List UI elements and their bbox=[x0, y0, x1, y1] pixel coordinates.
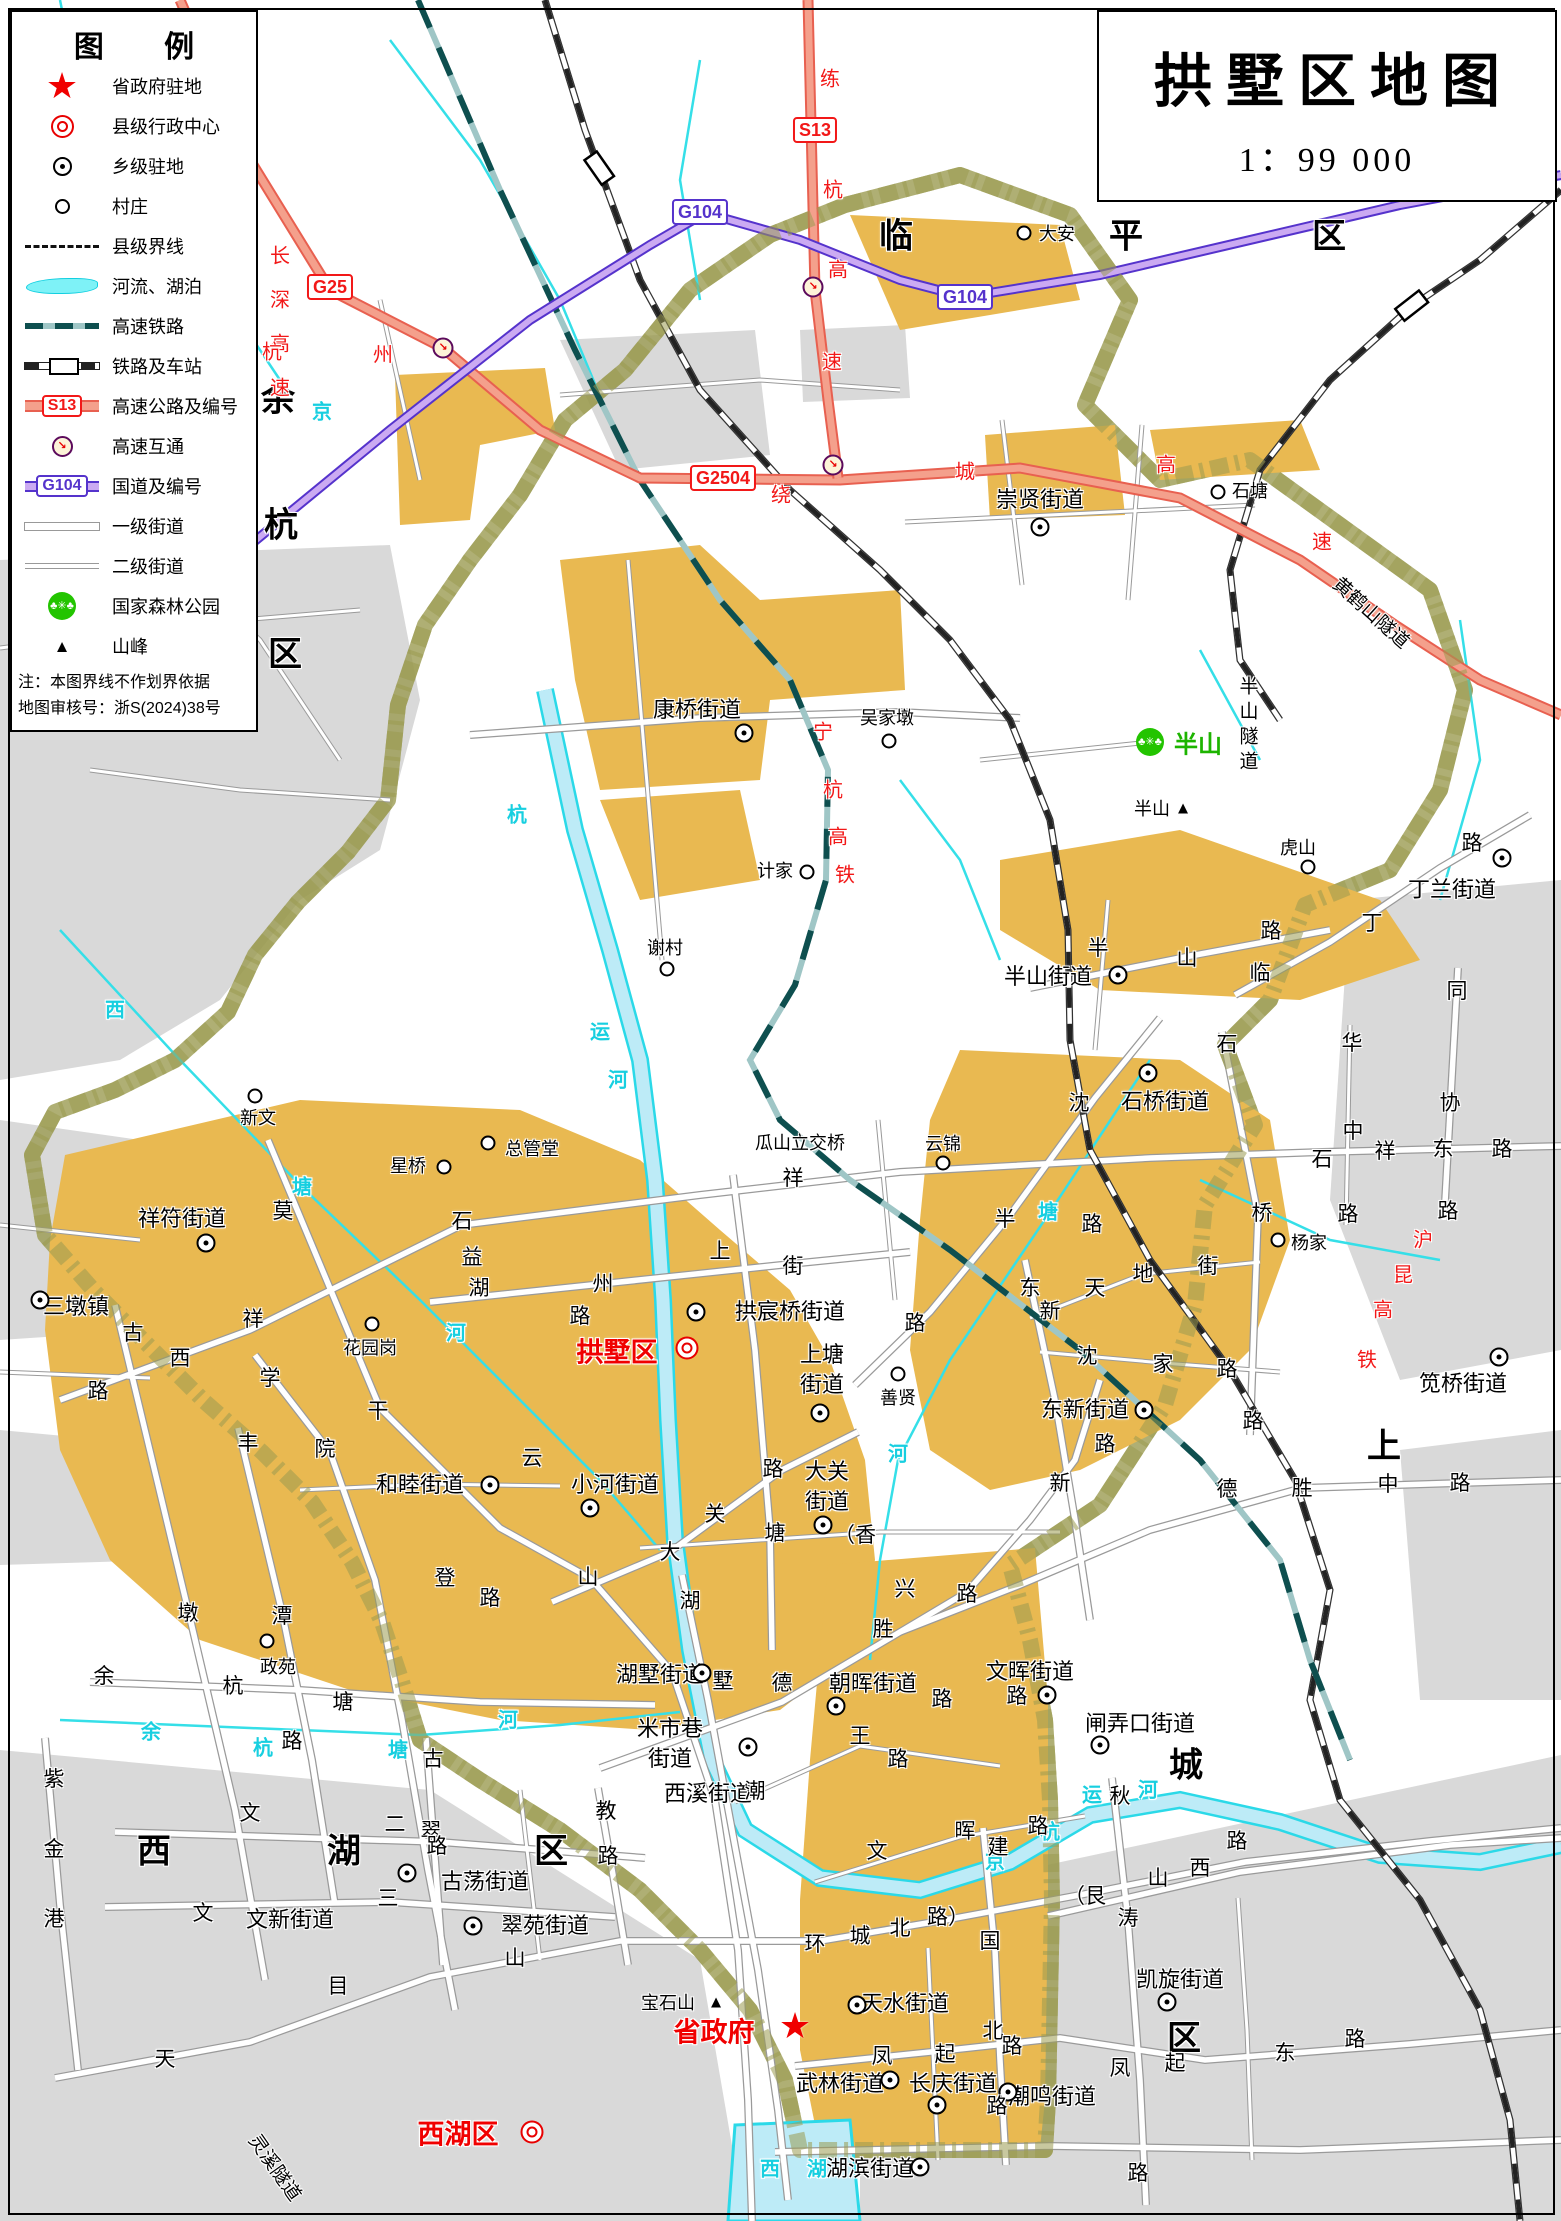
road-name-char: 同 bbox=[1447, 975, 1468, 1005]
village-marker bbox=[1271, 1233, 1286, 1248]
road-name-char: 路） bbox=[927, 1901, 969, 1931]
map-scale: 1：99 000 bbox=[1099, 132, 1555, 181]
road-name-char: 兴 bbox=[895, 1573, 916, 1603]
expressway-name-char: 深 bbox=[270, 284, 290, 313]
forest-park-label: 半山 bbox=[1174, 725, 1222, 760]
road-name-char: 新 bbox=[1050, 1467, 1071, 1497]
rail-icon bbox=[12, 362, 112, 370]
town-marker bbox=[1158, 1993, 1177, 2012]
legend-label: 国家森林公园 bbox=[112, 593, 220, 619]
road-name-char: 城 bbox=[850, 1920, 871, 1950]
road-name-char: 丁 bbox=[1362, 907, 1383, 937]
nat-icon: G104 bbox=[12, 481, 112, 492]
road-name-char: （香 bbox=[834, 1519, 876, 1549]
town-marker bbox=[928, 2096, 947, 2115]
town-marker bbox=[911, 2158, 930, 2177]
expressway-name-char: 昆 bbox=[1393, 1259, 1413, 1288]
forest-icon: ♣✳♣ bbox=[12, 592, 112, 620]
road-name-char: 路 bbox=[905, 1307, 926, 1337]
village-label: 杨家 bbox=[1291, 1229, 1327, 1255]
road-name-char: 山 bbox=[505, 1942, 526, 1972]
district-name-char: 杭 bbox=[264, 498, 300, 547]
road-name-char: 路 bbox=[1227, 1825, 1248, 1855]
village-marker bbox=[260, 1634, 275, 1649]
expressway-name-char: 速 bbox=[270, 372, 290, 401]
subdistrict-label: 米市巷 bbox=[637, 1711, 703, 1743]
river-name-char: 塘 bbox=[388, 1734, 408, 1763]
road-name-char: 路 bbox=[570, 1300, 591, 1330]
village-label: 政苑 bbox=[260, 1653, 296, 1679]
road-name-char: 北 bbox=[890, 1912, 911, 1942]
road1-icon bbox=[12, 522, 112, 531]
road-name-char: 王 bbox=[850, 1720, 871, 1750]
town-marker bbox=[464, 1917, 483, 1936]
road-name-char: 半 bbox=[995, 1203, 1016, 1233]
road-name-char: 街 bbox=[1198, 1250, 1219, 1280]
subdistrict-label: 石桥街道 bbox=[1121, 1084, 1209, 1116]
tunnel-label: 半山隧道 bbox=[1234, 676, 1261, 776]
road-name-char: 潮 bbox=[745, 1775, 766, 1805]
expressway-name-char: 速 bbox=[822, 346, 842, 375]
interchange-icon: ↘ bbox=[12, 436, 112, 457]
village-label: 石塘 bbox=[1232, 477, 1268, 503]
legend-label: 二级街道 bbox=[112, 553, 184, 579]
road-name-char: 益 bbox=[462, 1241, 483, 1271]
road-name-char: 杭 bbox=[223, 1670, 244, 1700]
road-name-char: 云 bbox=[522, 1442, 543, 1472]
expressway-name-char: 铁 bbox=[835, 859, 855, 888]
legend-item-road2: 二级街道 bbox=[12, 546, 256, 586]
road-name-char: 协 bbox=[1440, 1087, 1461, 1117]
legend-label: 山峰 bbox=[112, 633, 148, 659]
road-name-char: 路 bbox=[88, 1375, 109, 1405]
village-marker bbox=[800, 865, 815, 880]
road-name-char: 石 bbox=[452, 1205, 473, 1235]
town-icon bbox=[12, 157, 112, 176]
interchange-marker: ↘ bbox=[803, 277, 824, 298]
road-name-char: 家 bbox=[1153, 1348, 1174, 1378]
town-marker bbox=[481, 1476, 500, 1495]
village-marker bbox=[1017, 226, 1032, 241]
village-marker bbox=[891, 1367, 906, 1382]
town-marker bbox=[581, 1499, 600, 1518]
county-center-marker bbox=[676, 1337, 699, 1360]
village-label: 吴家墩 bbox=[860, 704, 914, 730]
town-marker bbox=[1031, 518, 1050, 537]
subdistrict-label: 古荡街道 bbox=[441, 1864, 529, 1896]
town-marker bbox=[197, 1234, 216, 1253]
river-name-char: 西 bbox=[105, 994, 125, 1023]
road-name-char: 沈 bbox=[1069, 1087, 1090, 1117]
road-name-char: 天 bbox=[155, 2043, 176, 2073]
expressway-name-char: 杭 bbox=[262, 336, 282, 365]
subdistrict-label: 翠苑街道 bbox=[501, 1908, 589, 1940]
road-name-char: 东 bbox=[1433, 1133, 1454, 1163]
legend-box: 图 例 ★省政府驻地县级行政中心乡级驻地村庄县级界线河流、湖泊高速铁路铁路及车站… bbox=[10, 10, 258, 732]
road-name-char: 半 bbox=[1088, 932, 1109, 962]
road-name-char: 路 bbox=[480, 1582, 501, 1612]
road-name-char: 余 bbox=[94, 1660, 115, 1690]
subdistrict-label: 丁兰街道 bbox=[1408, 872, 1496, 904]
road-name-char: 路 bbox=[282, 1725, 303, 1755]
road-name-char: 西 bbox=[170, 1342, 191, 1372]
village-marker bbox=[437, 1160, 452, 1175]
road-name-char: 胜 bbox=[873, 1613, 894, 1643]
road-name-char: 关 bbox=[705, 1498, 726, 1528]
road-name-char: 祥 bbox=[243, 1303, 264, 1333]
legend-item-expwy: S13高速公路及编号 bbox=[12, 386, 256, 426]
legend-label: 高速公路及编号 bbox=[112, 393, 238, 419]
road2-icon bbox=[12, 563, 112, 569]
village-marker bbox=[882, 734, 897, 749]
subdistrict-label: 上塘 bbox=[800, 1337, 844, 1369]
river-name-char: 河 bbox=[446, 1317, 466, 1346]
town-marker bbox=[827, 1697, 846, 1716]
road-name-char: 路 bbox=[1002, 2030, 1023, 2060]
subdistrict-label: 半山街道 bbox=[1004, 959, 1092, 991]
town-marker bbox=[1490, 1348, 1509, 1367]
route-badge-G104: G104 bbox=[937, 284, 993, 310]
road-name-char: 胜 bbox=[1292, 1472, 1313, 1502]
subdistrict-label: 湖墅街道 bbox=[616, 1657, 704, 1689]
road-name-char: 潭 bbox=[272, 1600, 293, 1630]
district-name-char: 临 bbox=[879, 209, 915, 258]
town-marker bbox=[814, 1516, 833, 1535]
road-name-char: 州 bbox=[593, 1268, 614, 1298]
district-name-char: 区 bbox=[268, 627, 304, 676]
road-name-char: 路 bbox=[1345, 2023, 1366, 2053]
red-place-label: 省政府 bbox=[674, 2011, 755, 2050]
subdistrict-label: 文新街道 bbox=[246, 1902, 334, 1934]
boundary-icon bbox=[12, 245, 112, 248]
legend-label: 一级街道 bbox=[112, 513, 184, 539]
legend-item-interchange: ↘高速互通 bbox=[12, 426, 256, 466]
legend-item-road1: 一级街道 bbox=[12, 506, 256, 546]
county-center-marker bbox=[521, 2121, 544, 2144]
town-marker bbox=[687, 1303, 706, 1322]
district-name-char: 湖 bbox=[327, 1824, 363, 1873]
road-name-char: 路 bbox=[1028, 1810, 1049, 1840]
village-label: 总管堂 bbox=[505, 1135, 559, 1161]
road-name-char: 祥 bbox=[783, 1162, 804, 1192]
road-name-char: 临 bbox=[1250, 957, 1271, 987]
subdistrict-label: 湖滨街道 bbox=[826, 2151, 914, 2183]
water-icon bbox=[12, 278, 112, 294]
road-name-char: 路 bbox=[1261, 915, 1282, 945]
peak-label: 半山 bbox=[1134, 795, 1170, 821]
road-name-char: 路 bbox=[1095, 1428, 1116, 1458]
map-page: 图 例 ★省政府驻地县级行政中心乡级驻地村庄县级界线河流、湖泊高速铁路铁路及车站… bbox=[0, 0, 1561, 2221]
map-title: 拱墅区地图 bbox=[1099, 34, 1555, 118]
road-name-char: 国 bbox=[980, 1925, 1001, 1955]
road-name-char: 路 bbox=[1438, 1195, 1459, 1225]
legend-items: ★省政府驻地县级行政中心乡级驻地村庄县级界线河流、湖泊高速铁路铁路及车站S13高… bbox=[12, 66, 256, 666]
legend-label: 村庄 bbox=[112, 193, 148, 219]
river-name-char: 河 bbox=[1138, 1774, 1158, 1803]
road-name-char: 路 bbox=[1243, 1405, 1264, 1435]
subdistrict-label: 拱宸桥街道 bbox=[735, 1294, 845, 1326]
legend-item-town: 乡级驻地 bbox=[12, 146, 256, 186]
road-name-char: 地 bbox=[1133, 1258, 1154, 1288]
road-name-char: 桥 bbox=[1252, 1197, 1273, 1227]
road-name-char: 路 bbox=[888, 1743, 909, 1773]
legend-item-forest: ♣✳♣国家森林公园 bbox=[12, 586, 256, 626]
road-name-char: 东 bbox=[1020, 1272, 1041, 1302]
town-marker bbox=[1139, 1064, 1158, 1083]
subdistrict-label: 小河街道 bbox=[571, 1467, 659, 1499]
hsr-icon bbox=[12, 323, 112, 329]
road-name-char: 湖 bbox=[469, 1272, 490, 1302]
village-label: 云锦 bbox=[925, 1130, 961, 1156]
legend-item-nat: G104国道及编号 bbox=[12, 466, 256, 506]
subdistrict-label: 武林街道 bbox=[796, 2066, 884, 2098]
road-name-char: 秋 bbox=[1110, 1780, 1131, 1810]
road-name-char: 中 bbox=[1378, 1468, 1399, 1498]
expressway-name-char: 绕 bbox=[771, 479, 791, 508]
road-name-char: 路 bbox=[763, 1453, 784, 1483]
village-label: 大安 bbox=[1039, 220, 1075, 246]
subdistrict-label: 朝晖街道 bbox=[829, 1666, 917, 1698]
subdistrict-label: 潮鸣街道 bbox=[1008, 2079, 1096, 2111]
road-name-char: 干 bbox=[368, 1395, 389, 1425]
red-place-label: 拱墅区 bbox=[577, 1331, 658, 1370]
legend-label: 乡级驻地 bbox=[112, 153, 184, 179]
road-name-char: 建 bbox=[988, 1831, 1009, 1861]
subdistrict-label: 三墩镇 bbox=[43, 1289, 109, 1321]
road-name-char: 古 bbox=[423, 1743, 444, 1773]
interchange-marker: ↘ bbox=[433, 338, 454, 359]
expressway-name-char: 速 bbox=[1312, 526, 1332, 555]
road-name-char: 登 bbox=[435, 1562, 456, 1592]
subdistrict-label: 康桥街道 bbox=[653, 692, 741, 724]
road-name-char: 港 bbox=[44, 1903, 65, 1933]
road-name-char: 目 bbox=[328, 1970, 349, 2000]
road-name-char: 墩 bbox=[178, 1597, 199, 1627]
village-marker bbox=[936, 1156, 951, 1171]
road-name-char: 东 bbox=[1275, 2037, 1296, 2067]
legend-label: 县级界线 bbox=[112, 233, 184, 259]
road-name-char: 墅 bbox=[713, 1665, 734, 1695]
district-name-char: 西 bbox=[137, 1824, 173, 1873]
legend-label: 国道及编号 bbox=[112, 473, 202, 499]
road-name-char: 石 bbox=[1217, 1028, 1238, 1058]
district-name-char: 区 bbox=[534, 1824, 570, 1873]
title-box: 拱墅区地图 1：99 000 bbox=[1097, 10, 1557, 202]
county-icon bbox=[12, 115, 112, 138]
village-label: 谢村 bbox=[647, 934, 683, 960]
road-name-char: 莫 bbox=[273, 1195, 294, 1225]
legend-item-star: ★省政府驻地 bbox=[12, 66, 256, 106]
road-name-char: 沈 bbox=[1077, 1340, 1098, 1370]
road-name-char: 西 bbox=[1190, 1852, 1211, 1882]
road-name-char: （艮 bbox=[1064, 1880, 1106, 1910]
road-name-char: 天 bbox=[1085, 1272, 1106, 1302]
road-name-char: 北 bbox=[983, 2015, 1004, 2045]
river-name-char: 西 bbox=[760, 2153, 780, 2182]
legend-note-2: 地图审核号：浙S(2024)38号 bbox=[18, 694, 250, 718]
forest-park-icon: ♣✳♣ bbox=[1136, 728, 1164, 756]
subdistrict-label: 笕桥街道 bbox=[1419, 1366, 1507, 1398]
town-marker bbox=[735, 724, 754, 743]
village-label: 花园岗 bbox=[343, 1334, 397, 1360]
expressway-name-char: 高 bbox=[1156, 449, 1176, 478]
road-name-char: 山 bbox=[1148, 1862, 1169, 1892]
town-marker bbox=[398, 1864, 417, 1883]
river-name-char: 塘 bbox=[1038, 1196, 1058, 1225]
peak-icon: ▲ bbox=[12, 638, 112, 655]
river-name-char: 京 bbox=[312, 396, 332, 425]
road-name-char: 紫 bbox=[44, 1763, 65, 1793]
road-name-char: 石 bbox=[1312, 1143, 1333, 1173]
village-marker bbox=[660, 962, 675, 977]
road-name-char: 山 bbox=[1177, 942, 1198, 972]
route-badge-S13: S13 bbox=[793, 117, 837, 143]
subdistrict-label: 文晖街道 bbox=[986, 1654, 1074, 1686]
legend-label: 铁路及车站 bbox=[112, 353, 202, 379]
subdistrict-label: 崇贤街道 bbox=[996, 482, 1084, 514]
village-marker bbox=[365, 1317, 380, 1332]
road-name-char: 文 bbox=[193, 1897, 214, 1927]
legend-item-peak: ▲山峰 bbox=[12, 626, 256, 666]
road-name-char: 塘 bbox=[765, 1517, 786, 1547]
subdistrict-label: 西溪街道 bbox=[664, 1776, 752, 1808]
road-name-char: 路 bbox=[987, 2090, 1008, 2120]
town-marker bbox=[848, 1996, 867, 2015]
provincial-gov-star: ★ bbox=[779, 2008, 811, 2044]
subdistrict-label: 和睦街道 bbox=[376, 1467, 464, 1499]
road-name-char: 塘 bbox=[333, 1686, 354, 1716]
river-name-char: 河 bbox=[608, 1064, 628, 1093]
road-name-char: 路 bbox=[1217, 1353, 1238, 1383]
road-name-char: 晖 bbox=[955, 1815, 976, 1845]
road-name-char: 中 bbox=[1343, 1115, 1364, 1145]
road-name-char: 上 bbox=[710, 1235, 731, 1265]
road-name-char: 德 bbox=[772, 1667, 793, 1697]
subdistrict-label: 闸弄口街道 bbox=[1085, 1706, 1195, 1738]
expwy-icon: S13 bbox=[12, 400, 112, 412]
route-badge-G2504: G2504 bbox=[690, 465, 756, 491]
legend-item-village: 村庄 bbox=[12, 186, 256, 226]
road-name-char: 院 bbox=[315, 1433, 336, 1463]
river-name-char: 运 bbox=[1082, 1779, 1102, 1808]
road-name-char: 新 bbox=[1040, 1295, 1061, 1325]
subdistrict-label: 大关 bbox=[805, 1454, 849, 1486]
road-name-char: 路 bbox=[957, 1578, 978, 1608]
legend-item-boundary: 县级界线 bbox=[12, 226, 256, 266]
village-icon bbox=[12, 199, 112, 214]
route-badge-G104: G104 bbox=[672, 199, 728, 225]
peak-label: 宝石山 bbox=[641, 1989, 695, 2015]
village-marker bbox=[1301, 860, 1316, 875]
district-name-char: 平 bbox=[1109, 209, 1145, 258]
town-marker bbox=[881, 2071, 900, 2090]
river-name-char: 湖 bbox=[807, 2153, 827, 2182]
road-name-char: 学 bbox=[260, 1362, 281, 1392]
town-marker bbox=[739, 1738, 758, 1757]
expressway-name-char: 铁 bbox=[1357, 1344, 1377, 1373]
road-name-char: 起 bbox=[1165, 2047, 1186, 2077]
legend-item-water: 河流、湖泊 bbox=[12, 266, 256, 306]
legend-note-1: 注：本图界线不作划界依据 bbox=[18, 668, 250, 692]
road-name-char: 路 bbox=[1450, 1467, 1471, 1497]
village-marker bbox=[248, 1089, 263, 1104]
road-name-char: 街 bbox=[783, 1250, 804, 1280]
subdistrict-label-line2: 街道 bbox=[648, 1741, 692, 1773]
expressway-name-char: 杭 bbox=[823, 174, 843, 203]
expressway-name-char: 高 bbox=[828, 254, 848, 283]
expressway-name-char: 州 bbox=[373, 339, 393, 368]
road-name-char: 凤 bbox=[1110, 2052, 1131, 2082]
river-name-char: 杭 bbox=[507, 799, 527, 828]
river-name-char: 塘 bbox=[292, 1171, 312, 1200]
river-name-char: 运 bbox=[590, 1016, 610, 1045]
expressway-name-char: 练 bbox=[820, 63, 840, 92]
subdistrict-label: 祥符街道 bbox=[138, 1201, 226, 1233]
expressway-name-char: 宁 bbox=[813, 716, 833, 745]
road-name-char: 大 bbox=[660, 1536, 681, 1566]
town-marker bbox=[1493, 849, 1512, 868]
road-name-char: 路 bbox=[1082, 1208, 1103, 1238]
town-marker bbox=[693, 1664, 712, 1683]
interchange-marker: ↘ bbox=[823, 455, 844, 476]
river-name-char: 河 bbox=[498, 1704, 518, 1733]
road-name-char: 文 bbox=[240, 1797, 261, 1827]
road-name-char: 山 bbox=[578, 1561, 599, 1591]
town-marker bbox=[1091, 1736, 1110, 1755]
village-label: 计家 bbox=[757, 857, 793, 883]
subdistrict-label-line2: 街道 bbox=[800, 1367, 844, 1399]
village-label: 新文 bbox=[240, 1104, 276, 1130]
expressway-name-char: 杭 bbox=[823, 774, 843, 803]
legend-label: 河流、湖泊 bbox=[112, 273, 202, 299]
road-name-char: 路 bbox=[598, 1840, 619, 1870]
road-name-char: 教 bbox=[596, 1795, 617, 1825]
peak-marker: ▲ bbox=[708, 1994, 725, 2011]
road-name-char: 路 bbox=[1492, 1133, 1513, 1163]
route-badge-G25: G25 bbox=[307, 274, 353, 300]
road-name-char: 起 bbox=[935, 2038, 956, 2068]
river-name-char: 余 bbox=[141, 1716, 161, 1745]
legend-title: 图 例 bbox=[12, 22, 256, 66]
road-name-char: 金 bbox=[44, 1833, 65, 1863]
road-name-char: 路 bbox=[427, 1830, 448, 1860]
road-name-char: 丰 bbox=[238, 1427, 259, 1457]
subdistrict-label: 长庆街道 bbox=[909, 2066, 997, 2098]
road-name-char: 德 bbox=[1217, 1473, 1238, 1503]
village-label: 瓜山立交桥 bbox=[755, 1129, 845, 1155]
district-name-char: 上 bbox=[1367, 1419, 1403, 1468]
peak-marker: ▲ bbox=[1175, 800, 1192, 817]
village-label: 星桥 bbox=[390, 1152, 426, 1178]
town-marker bbox=[1109, 966, 1128, 985]
road-name-char: 文 bbox=[867, 1835, 888, 1865]
road-name-char: 路 bbox=[1128, 2157, 1149, 2187]
river-name-char: 杭 bbox=[253, 1732, 273, 1761]
subdistrict-label-line2: 街道 bbox=[805, 1484, 849, 1516]
road-name-char: 路 bbox=[1338, 1198, 1359, 1228]
road-name-char: 凤 bbox=[872, 2040, 893, 2070]
road-name-char: 涛 bbox=[1118, 1902, 1139, 1932]
expressway-name-char: 长 bbox=[270, 240, 290, 269]
village-label: 虎山 bbox=[1280, 834, 1316, 860]
village-label: 善贤 bbox=[880, 1384, 916, 1410]
road-name-char: 环 bbox=[805, 1928, 826, 1958]
road-name-char: 路 bbox=[932, 1683, 953, 1713]
road-name-char: 古 bbox=[123, 1317, 144, 1347]
town-marker bbox=[1038, 1686, 1057, 1705]
legend-item-hsr: 高速铁路 bbox=[12, 306, 256, 346]
road-name-char: 华 bbox=[1342, 1027, 1363, 1057]
